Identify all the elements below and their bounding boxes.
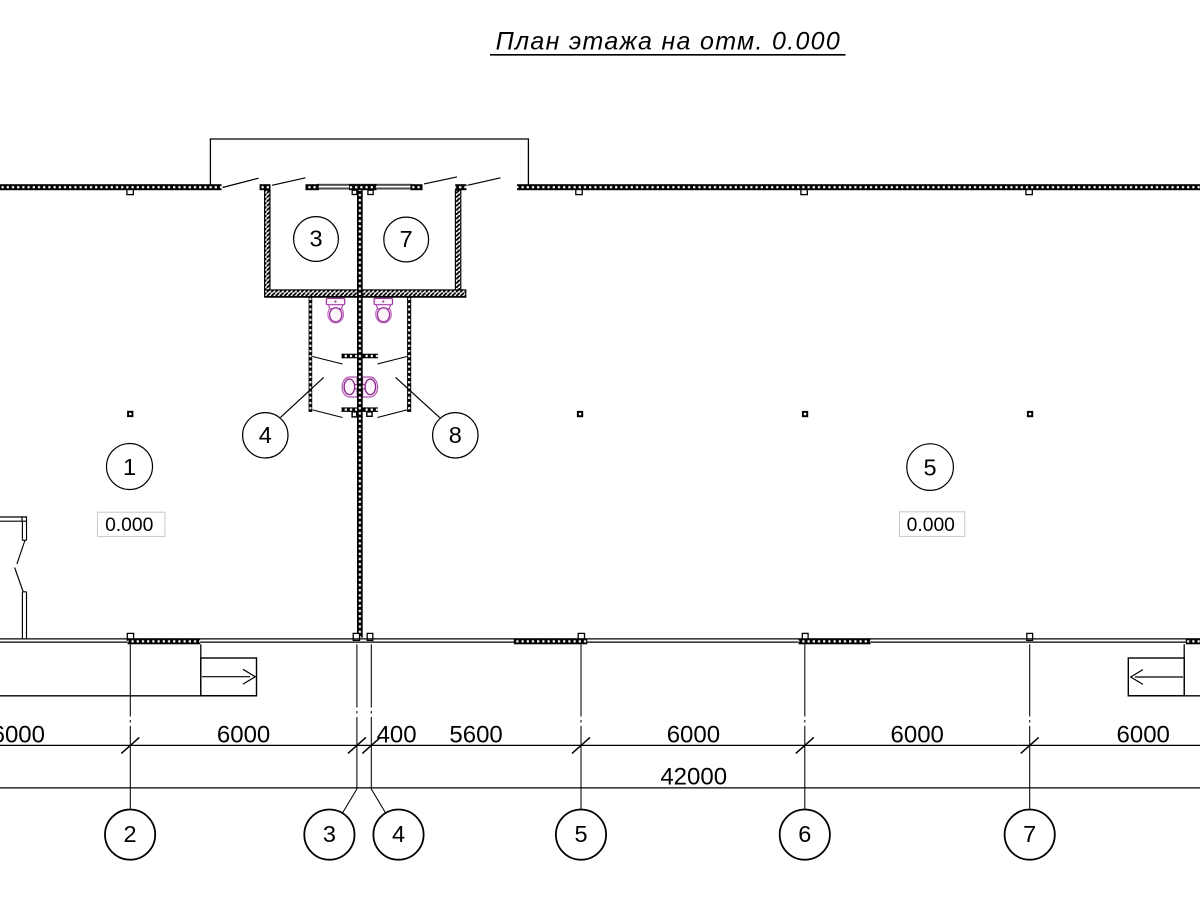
- svg-text:400: 400: [377, 722, 417, 749]
- svg-text:5600: 5600: [449, 722, 502, 749]
- svg-text:6000: 6000: [0, 722, 45, 749]
- svg-text:0.000: 0.000: [907, 515, 955, 536]
- svg-text:4: 4: [259, 422, 272, 448]
- svg-text:3: 3: [309, 226, 322, 252]
- svg-text:План этажа на отм. 0.000: План этажа на отм. 0.000: [496, 28, 841, 56]
- svg-text:42000: 42000: [660, 764, 727, 791]
- svg-text:8: 8: [449, 422, 462, 448]
- svg-text:6: 6: [798, 821, 811, 847]
- svg-text:6000: 6000: [1117, 722, 1170, 749]
- svg-text:6000: 6000: [891, 722, 944, 749]
- svg-text:2: 2: [124, 821, 137, 847]
- svg-text:6000: 6000: [217, 722, 270, 749]
- svg-text:7: 7: [400, 226, 413, 252]
- svg-text:5: 5: [924, 454, 937, 480]
- svg-text:5: 5: [574, 821, 587, 847]
- svg-text:7: 7: [1023, 821, 1036, 847]
- svg-text:0.000: 0.000: [105, 515, 153, 536]
- svg-text:4: 4: [392, 821, 405, 847]
- svg-text:1: 1: [123, 454, 136, 480]
- svg-text:6000: 6000: [667, 722, 720, 749]
- svg-text:3: 3: [323, 821, 336, 847]
